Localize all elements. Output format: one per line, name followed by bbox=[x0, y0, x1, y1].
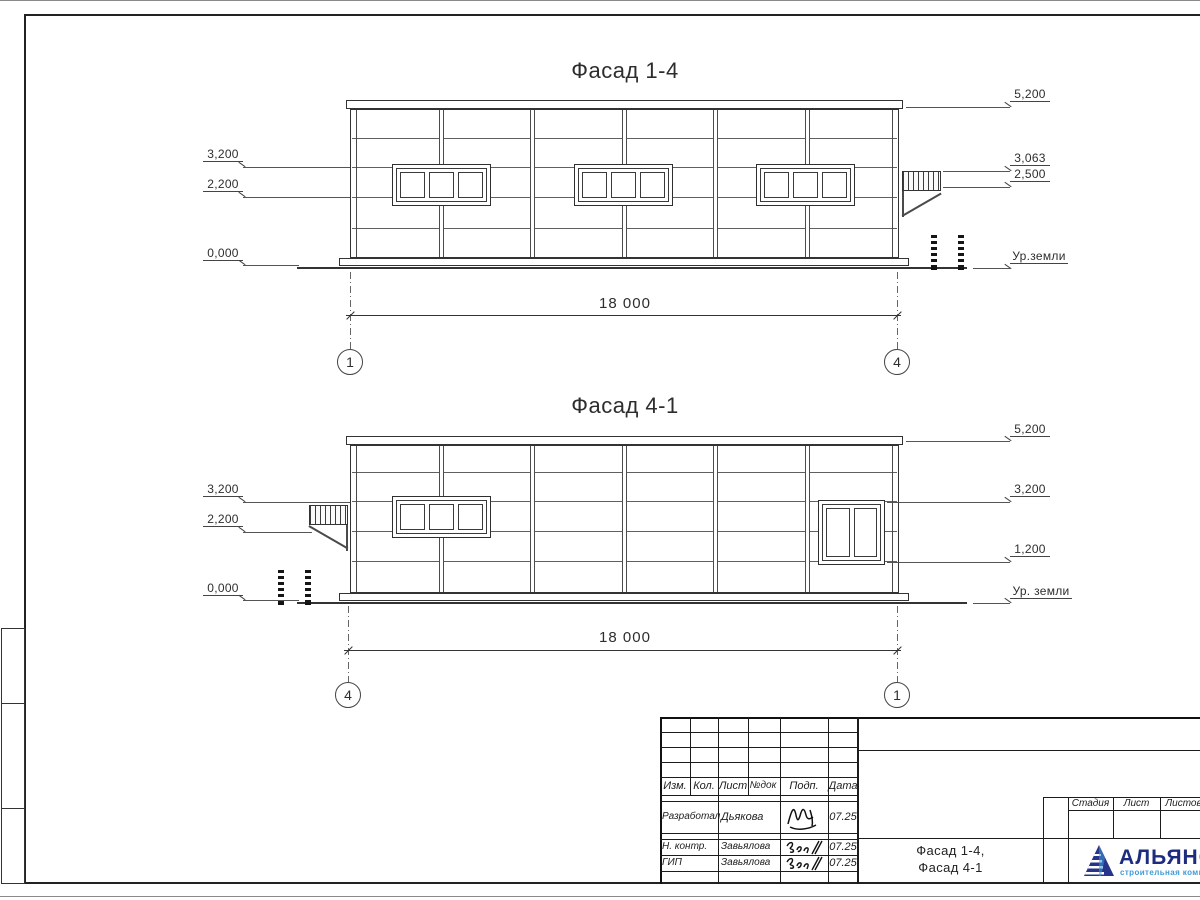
stamp-name: Завьялова bbox=[721, 857, 770, 868]
sheet-title-line1: Фасад 1-4, bbox=[858, 843, 1043, 858]
logo-name: АЛЬЯНС bbox=[1119, 846, 1200, 870]
stamp-name: Дьякова bbox=[721, 811, 763, 823]
stamp-line bbox=[1043, 797, 1044, 884]
stamp-col-podp: Подп. bbox=[780, 780, 828, 792]
stamp-col-data: Дата bbox=[828, 780, 858, 792]
stamp-date: 07.25 bbox=[828, 841, 858, 853]
stamp-col-list: Лист bbox=[718, 780, 748, 792]
stage-col-list: Лист bbox=[1113, 798, 1160, 809]
stamp-line bbox=[718, 717, 719, 884]
stamp-date: 07.25 bbox=[828, 811, 858, 823]
signature bbox=[784, 854, 824, 874]
stamp-line bbox=[858, 750, 1200, 751]
company-logo: АЛЬЯНС строительная компания bbox=[1069, 839, 1200, 883]
title-block: Изм. Кол. Лист №док Подп. Дата Разработа… bbox=[0, 0, 1200, 900]
stamp-line bbox=[1068, 810, 1200, 811]
stamp-col-ndok: №док bbox=[746, 780, 780, 791]
stamp-name: Завьялова bbox=[721, 841, 770, 852]
logo-subtitle: строительная компания bbox=[1120, 868, 1200, 877]
stamp-col-izm: Изм. bbox=[660, 780, 690, 792]
stamp-role: ГИП bbox=[662, 857, 682, 868]
alliance-pyramid-icon bbox=[1083, 844, 1115, 878]
sheet-title-line2: Фасад 4-1 bbox=[858, 860, 1043, 875]
drawing-page: { "facade_top": { "title": "Фасад 1-4", … bbox=[0, 0, 1200, 900]
signature bbox=[782, 802, 826, 832]
stage-col-listov: Листов bbox=[1160, 798, 1200, 809]
stamp-col-kol: Кол. bbox=[690, 780, 718, 792]
stamp-line bbox=[780, 717, 781, 884]
stamp-role: Разработал bbox=[662, 811, 720, 822]
stage-col-stadia: Стадия bbox=[1068, 798, 1113, 809]
stamp-role: Н. контр. bbox=[662, 841, 707, 852]
stamp-date: 07.25 bbox=[828, 857, 858, 869]
